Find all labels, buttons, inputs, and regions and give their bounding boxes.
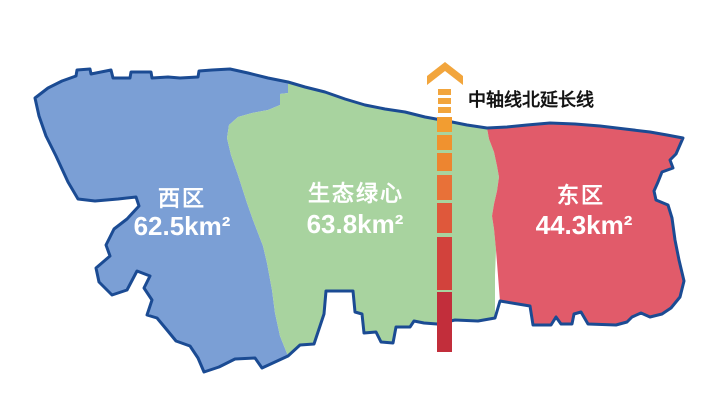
green-heart-area-label: 63.8km²: [307, 209, 404, 239]
west-district-name-label: 西区: [158, 186, 206, 211]
axis-dash-segment: [437, 153, 452, 171]
east-district-name-label: 东区: [557, 183, 605, 208]
district-map-canvas: 中轴线北延长线 西区 62.5km² 生态绿心 63.8km² 东区 44.3k…: [0, 0, 718, 407]
axis-arrow-icon: [427, 62, 463, 85]
axis-dash-segment: [437, 203, 452, 233]
west-district-area-label: 62.5km²: [134, 211, 231, 241]
district-map: 中轴线北延长线 西区 62.5km² 生态绿心 63.8km² 东区 44.3k…: [0, 0, 718, 407]
green-heart-name-label: 生态绿心: [308, 181, 404, 206]
axis-dash-segment: [438, 89, 451, 95]
axis-dash-segment: [438, 98, 451, 104]
axis-label: 中轴线北延长线: [468, 89, 594, 110]
axis-dash-segment: [437, 135, 452, 150]
axis-dash-segment: [437, 237, 452, 290]
east-district-area-label: 44.3km²: [536, 210, 633, 240]
axis-dash-segment: [437, 175, 452, 200]
axis-dash-segment: [437, 117, 452, 132]
axis-dash-segment: [437, 292, 452, 352]
axis-dash-segment: [438, 107, 451, 113]
